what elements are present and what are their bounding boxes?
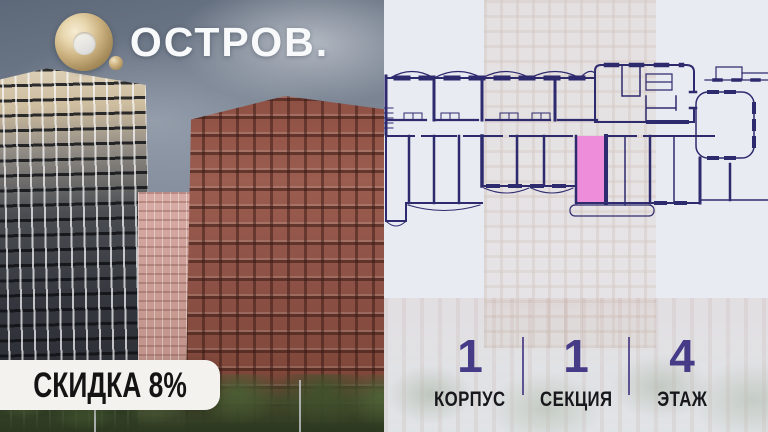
balcony-arc-a — [387, 222, 405, 226]
partitions-upper — [434, 78, 555, 120]
terrace-connection — [690, 92, 696, 108]
partitions-lower-left — [409, 136, 459, 203]
balcony-arc-b — [408, 205, 480, 211]
street-lamp — [299, 380, 301, 432]
discount-badge: СКИДКА 8% — [0, 360, 220, 410]
topright-room — [716, 67, 742, 80]
brand-logo: ОСТРОВ. — [55, 13, 329, 71]
stat-korpus: 1 КОРПУС — [418, 333, 522, 412]
stat-etazh: 4 ЭТАЖ — [630, 333, 734, 412]
terrace-windows — [709, 92, 754, 158]
discount-label: СКИДКА 8% — [33, 364, 187, 405]
stat-etazh-label: ЭТАЖ — [657, 388, 707, 412]
stat-separator — [522, 337, 524, 395]
block-outline — [595, 65, 694, 122]
unit-stats: 1 КОРПУС 1 СЕКЦИЯ 4 ЭТАЖ — [384, 333, 768, 412]
partitions-lower-mid — [517, 136, 544, 185]
block-interior-1 — [622, 65, 640, 96]
terrace-outline — [696, 92, 754, 158]
brand-name: ОСТРОВ. — [130, 19, 329, 66]
floor-plan — [384, 52, 768, 238]
promo-banner: ОСТРОВ. СКИДКА 8% — [0, 0, 768, 432]
bottom-wall-b — [386, 203, 482, 221]
photo-panel: ОСТРОВ. СКИДКА 8% — [0, 0, 384, 432]
brand-ring-icon — [55, 13, 113, 71]
plan-panel: 1 КОРПУС 1 СЕКЦИЯ 4 ЭТАЖ — [384, 0, 768, 432]
stat-etazh-value: 4 — [669, 333, 695, 379]
stat-separator — [628, 337, 630, 395]
stat-sektsiya: 1 СЕКЦИЯ — [524, 333, 628, 412]
stat-sektsiya-label: СЕКЦИЯ — [540, 388, 612, 412]
highlighted-unit — [576, 136, 606, 203]
block-interior-2 — [646, 96, 676, 122]
brand-dot-icon — [109, 56, 123, 70]
stat-korpus-label: КОРПУС — [434, 388, 506, 412]
block-fixture — [646, 74, 672, 90]
balcony-arcs-c — [484, 188, 573, 193]
counters — [404, 113, 550, 119]
stat-korpus-value: 1 — [457, 333, 483, 379]
unit-balcony — [570, 205, 654, 216]
stat-sektsiya-value: 1 — [563, 333, 589, 379]
